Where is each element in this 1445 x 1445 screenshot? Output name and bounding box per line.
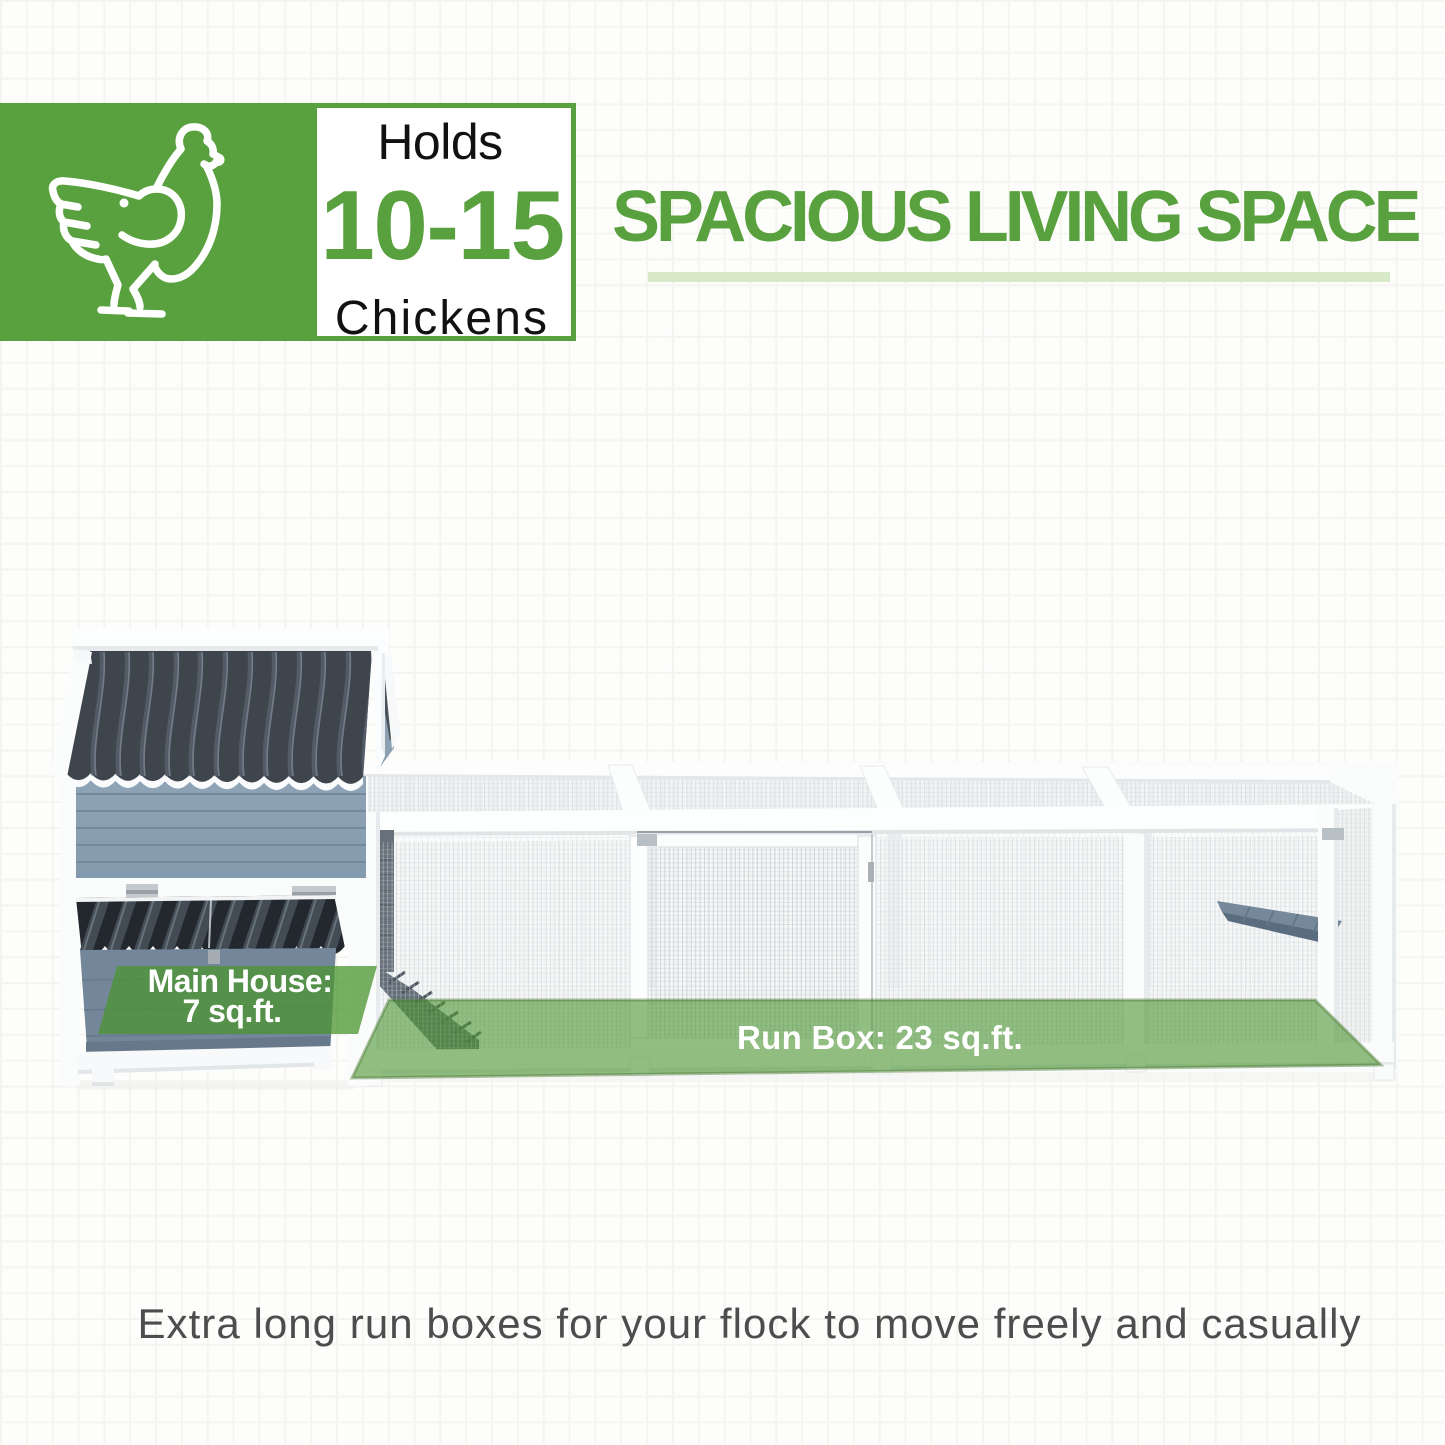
svg-text:Run Box: 23 sq.ft.: Run Box: 23 sq.ft. <box>737 1019 1023 1056</box>
svg-text:7 sq.ft.: 7 sq.ft. <box>182 993 281 1029</box>
